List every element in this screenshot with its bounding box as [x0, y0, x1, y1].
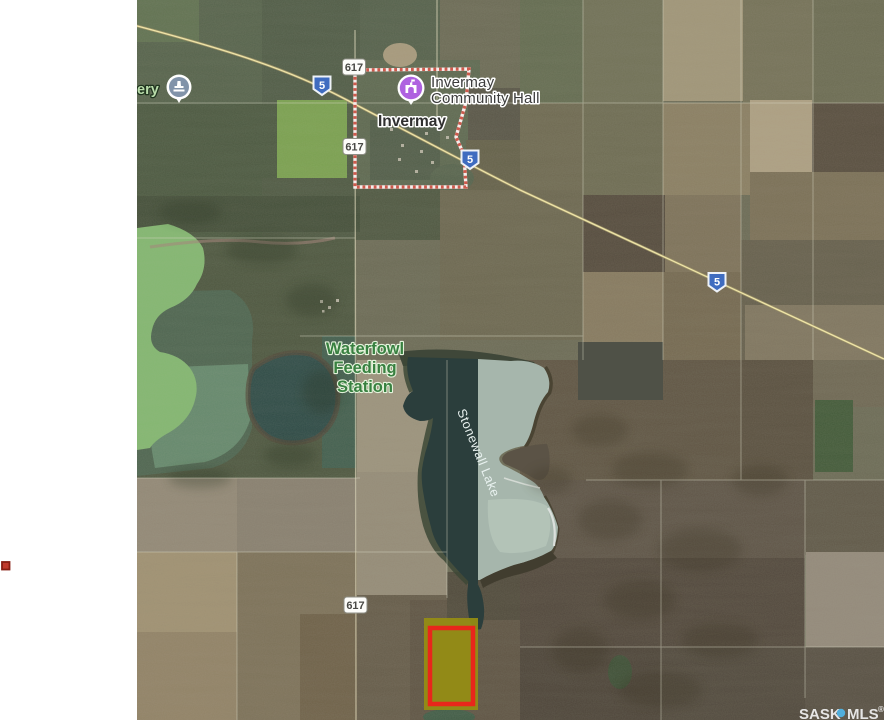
svg-text:Invermay: Invermay — [431, 74, 495, 91]
svg-text:Invermay: Invermay — [378, 113, 446, 130]
svg-text:5: 5 — [319, 80, 325, 92]
svg-text:Feeding: Feeding — [333, 359, 396, 377]
svg-text:Station: Station — [337, 378, 393, 396]
svg-text:SASK: SASK — [799, 706, 841, 720]
svg-text:Community Hall: Community Hall — [431, 90, 540, 107]
svg-text:MLS: MLS — [847, 706, 879, 720]
svg-text:5: 5 — [714, 276, 720, 288]
svg-text:617: 617 — [345, 62, 363, 74]
svg-text:ery: ery — [137, 82, 159, 98]
svg-text:®: ® — [878, 705, 884, 714]
svg-text:5: 5 — [467, 154, 473, 166]
svg-text:Waterfowl: Waterfowl — [326, 340, 404, 358]
svg-text:617: 617 — [345, 142, 363, 154]
svg-text:617: 617 — [346, 600, 364, 612]
